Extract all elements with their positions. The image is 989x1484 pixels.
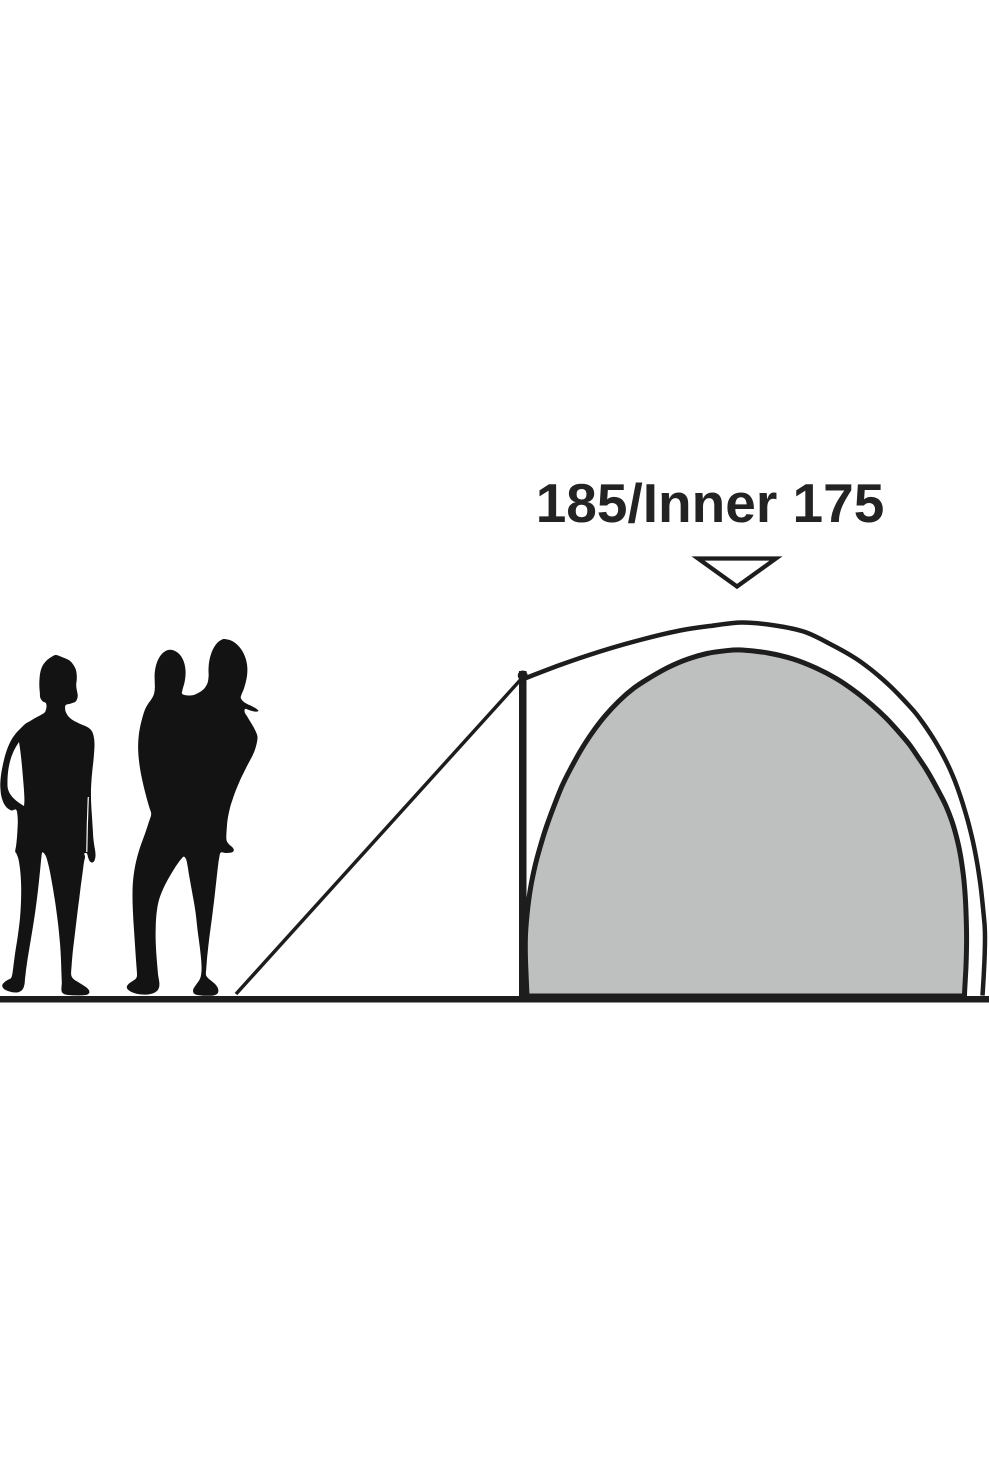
svg-text:185/Inner 175: 185/Inner 175 bbox=[536, 472, 885, 534]
